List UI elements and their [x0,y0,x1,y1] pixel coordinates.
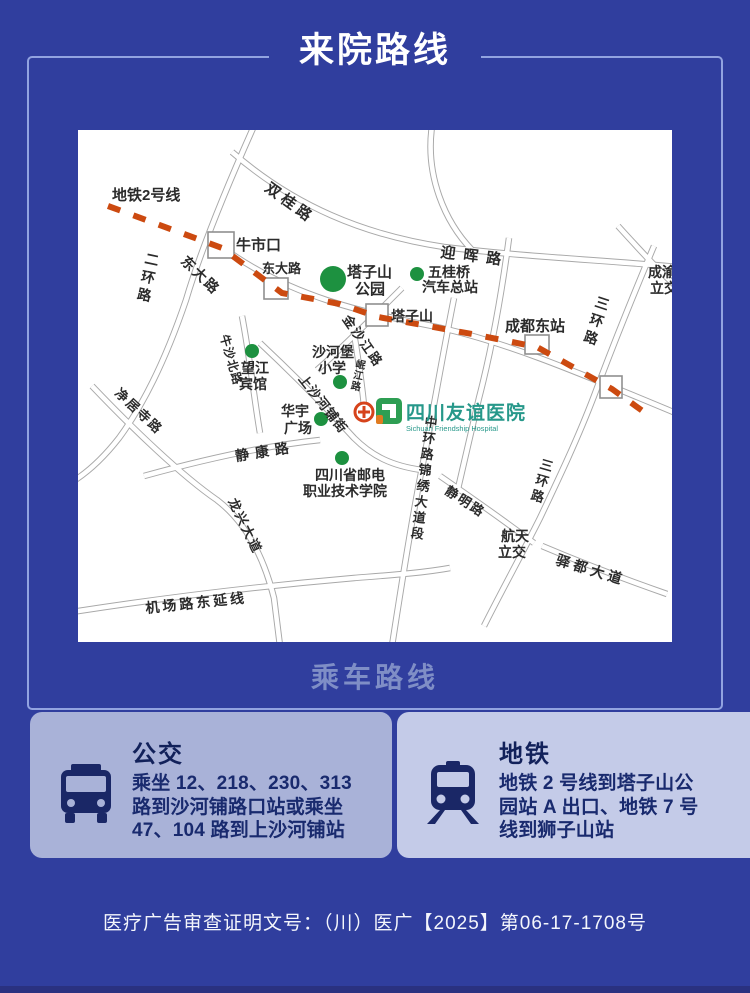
metro-card-text: 地铁 2 号线到塔子山公园站 A 出口、地铁 7 号线到狮子山站 [499,772,699,843]
map-label: 静康路 [234,439,296,464]
train-icon [421,752,485,834]
map-label: 成渝 [648,264,672,280]
map-label: 东大路 [262,261,302,276]
road-fill-erhuan-lu [78,130,254,482]
map-label: 塔子山 [347,263,392,281]
hospital-logo: 四川友谊医院Sichuan Friendship Hospital [355,398,526,433]
hospital-name-en-label: Sichuan Friendship Hospital [406,424,498,433]
page-title-text: 来院路线 [269,22,481,73]
poi-dot [245,344,259,358]
metro-station-marker [366,304,388,326]
map-label: 广场 [284,420,312,436]
map-label: 华宇 [281,403,309,419]
route-poster: 来院路线 地铁2号线双桂路牛市口东大路东大路迎晖路二环路塔子山公园五桂桥汽车总站… [0,0,750,993]
map-label: 五桂桥 [428,264,471,280]
metro-card-title: 地铁 [499,734,551,769]
road-fill-north-road [431,130,472,250]
map-label: 立交 [650,280,672,296]
map-label: 公园 [355,281,385,298]
map-label: 驿都大道 [554,552,628,588]
hospital-map: 地铁2号线双桂路牛市口东大路东大路迎晖路二环路塔子山公园五桂桥汽车总站塔子山成都… [78,130,672,642]
bus-card-title: 公交 [132,734,184,769]
map-label: 二环路 [136,250,161,304]
page-title: 来院路线 [0,22,750,73]
metro-card: 地铁 地铁 2 号线到塔子山公园站 A 出口、地铁 7 号线到狮子山站 [397,712,750,858]
map-canvas: 地铁2号线双桂路牛市口东大路东大路迎晖路二环路塔子山公园五桂桥汽车总站塔子山成都… [78,130,672,642]
bottom-strip [0,986,750,993]
bus-card-text: 乘坐 12、218、230、313路到沙河铺路口站或乘坐47、104 路到上沙河… [132,772,352,843]
map-label: 职业技术学院 [303,483,387,499]
map-label: 地铁2号线 [112,186,180,204]
bus-icon [54,752,118,834]
map-label: 航天 [501,528,530,544]
map-label: 中环路锦绣大道段 [410,414,439,542]
map-label: 龙兴大道 [225,496,265,557]
map-label: 立交 [498,544,526,560]
map-label: 沙河堡 [312,344,354,360]
map-label: 三环路 [582,294,612,348]
hospital-name-label: 四川友谊医院 [406,401,526,424]
poi-dot [335,451,349,465]
poi-dot [320,266,346,292]
poi-dot [333,375,347,389]
license-footer: 医疗广告审查证明文号：（川）医广【2025】第06-17-1708号 [0,908,750,935]
map-label: 牛市口 [236,236,281,254]
map-label: 四川省邮电 [315,467,385,483]
map-label: 望江 [241,360,269,376]
map-label: 汽车总站 [422,279,478,295]
map-label: 小学 [318,360,346,376]
map-label: 塔子山 [391,308,433,324]
bus-card: 公交 乘坐 12、218、230、313路到沙河铺路口站或乘坐47、104 路到… [30,712,392,858]
transit-cards: 公交 乘坐 12、218、230、313路到沙河铺路口站或乘坐47、104 路到… [0,712,750,858]
map-label: 成都东站 [505,317,565,335]
section-label: 乘车路线 [0,656,750,696]
